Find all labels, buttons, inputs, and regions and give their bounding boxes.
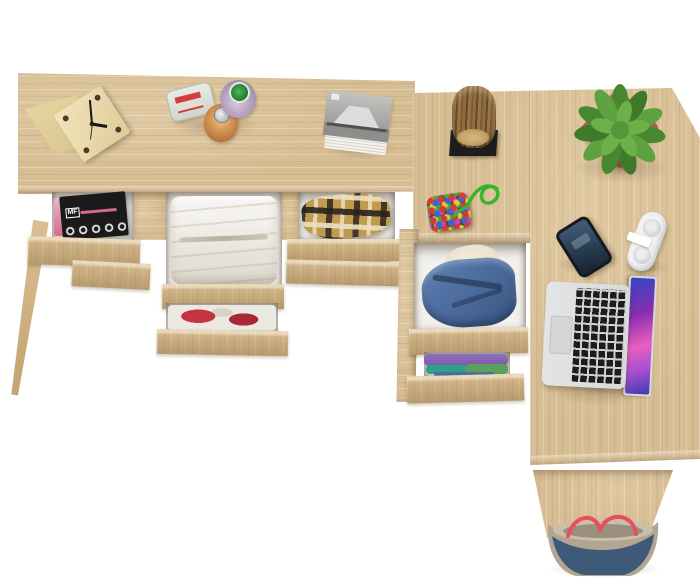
red-folded-clothes xyxy=(168,305,276,330)
clock-hour-hand xyxy=(92,123,107,128)
magazine-title-line xyxy=(81,208,117,214)
cabinet-front-edge xyxy=(413,233,530,243)
product-photo: MF xyxy=(0,0,700,580)
drawer-front xyxy=(287,239,408,261)
drawer-front xyxy=(409,327,528,355)
drawer-open-red-clothes xyxy=(166,303,278,332)
magazine-rings-art xyxy=(64,220,127,238)
denim-jacket xyxy=(420,256,519,330)
log-ornament xyxy=(446,84,502,160)
drawer-divider xyxy=(134,192,166,240)
drawer-open-folded-shirts xyxy=(424,352,510,376)
right-desk-front-edge xyxy=(525,450,700,468)
white-folded-clothes xyxy=(171,196,277,284)
smartphone xyxy=(558,218,610,278)
perfume-bottle-green-cap xyxy=(220,80,256,118)
drawer-front-lower xyxy=(71,260,150,290)
clock-second-hand xyxy=(90,124,93,140)
drawer-front xyxy=(407,373,525,403)
white-device xyxy=(624,208,670,276)
magazine-cover: MF xyxy=(59,191,129,241)
drawer-open-plaid-shirt xyxy=(298,192,395,240)
desk-seam xyxy=(529,90,531,465)
denim-tote-bag xyxy=(538,506,668,580)
magazine-logo: MF xyxy=(65,207,80,218)
drawer-open-white-clothes xyxy=(166,192,282,288)
laptop-body xyxy=(541,281,630,389)
book-stack xyxy=(320,90,397,160)
laptop xyxy=(541,269,660,403)
drawer-open-magazines: MF xyxy=(52,192,134,240)
plaid-shirt xyxy=(300,190,392,242)
log-trunk xyxy=(452,86,496,148)
potted-plant xyxy=(574,74,666,178)
drawer-open-denim-jacket xyxy=(414,243,526,331)
drawer-divider xyxy=(282,192,298,240)
drawer-front-lower xyxy=(286,259,415,286)
laptop-keyboard xyxy=(572,288,627,384)
laptop-trackpad xyxy=(549,315,573,354)
perfume-bottles xyxy=(168,80,260,144)
clock-minute-hand xyxy=(89,100,93,124)
drawer-front xyxy=(157,329,288,356)
cube-clock xyxy=(38,84,126,164)
keychain-cord xyxy=(450,176,506,224)
